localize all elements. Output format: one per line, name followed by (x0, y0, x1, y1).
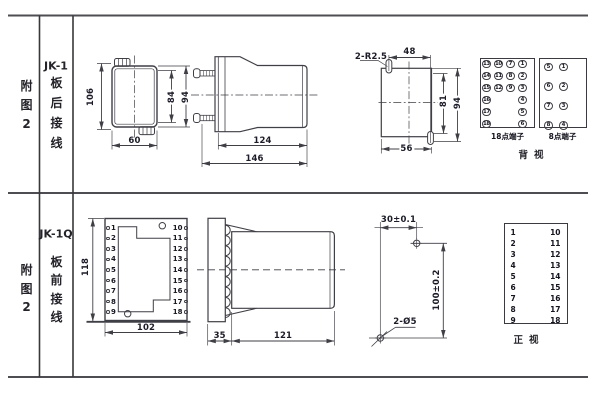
terminal-dot-icon (184, 310, 188, 314)
model-label-jk1: JK-1 (44, 60, 68, 73)
front-left-terminals: 123456789 (106, 223, 126, 319)
mounting-screw-bottom (194, 114, 201, 123)
terminal-row-label: 12 (173, 245, 183, 253)
terminal-circle-10: 10 (494, 60, 503, 69)
terminal-row-label: 3 (111, 245, 116, 253)
terminal-circle-17: 17 (482, 108, 491, 117)
front-table-left-column: 123456789 (511, 227, 516, 326)
terminal-dot-icon (106, 226, 110, 230)
terminal-row-label: 15 (173, 277, 183, 285)
terminal-row-4: 4 (106, 255, 116, 264)
back-view-caption: 背视 (518, 147, 549, 161)
terminal-dot-icon (106, 310, 110, 314)
terminal-number-12: 12 (550, 249, 560, 260)
terminal-row-label: 16 (173, 287, 183, 295)
terminal-number-4: 4 (511, 260, 516, 271)
terminal-circle-7: 7 (506, 60, 515, 69)
front-table-right-column: 101112131415161718 (550, 227, 560, 326)
dim-56: 56 (399, 144, 414, 154)
terminal-circle-4: 4 (559, 121, 568, 130)
terminal-circle-8: 8 (544, 121, 553, 130)
terminal-row-12: 12 (173, 244, 188, 253)
terminal-row-9: 9 (106, 308, 116, 317)
terminal-dot-icon (106, 300, 110, 304)
mounting-hole-top (159, 223, 165, 229)
terminal-circle-9: 9 (506, 84, 515, 93)
terminal-row-16: 16 (173, 287, 188, 296)
terminal-row-label: 1 (111, 224, 116, 232)
terminal-number-17: 17 (550, 304, 560, 315)
terminal-block-18-label: 18点端子 (478, 131, 537, 142)
dim-60: 60 (128, 136, 140, 146)
terminal-number-11: 11 (550, 238, 560, 249)
terminal-circle-7: 7 (544, 102, 553, 111)
dim-100: 100±0.2 (432, 269, 442, 310)
terminal-row-8: 8 (106, 297, 116, 306)
label-2-d5: 2-Ø5 (393, 317, 416, 327)
dim-94-rear: 94 (181, 89, 191, 104)
terminal-number-14: 14 (550, 271, 560, 282)
terminal-number-16: 16 (550, 293, 560, 304)
terminal-row-label: 11 (173, 234, 183, 242)
terminal-circle-11: 11 (494, 72, 503, 81)
terminal-dot-icon (106, 268, 110, 272)
wiring-label-row2: 板前接线 (50, 253, 64, 327)
terminal-circle-1: 1 (518, 60, 527, 69)
terminal-row-6: 6 (106, 276, 116, 285)
dim-48: 48 (403, 47, 415, 57)
terminal-circle-5: 5 (544, 63, 553, 72)
terminal-dot-icon (184, 300, 188, 304)
terminal-number-8: 8 (511, 304, 516, 315)
terminal-circle-18: 18 (482, 120, 491, 129)
terminal-row-label: 6 (111, 277, 116, 285)
front-side-view-drawing (197, 218, 345, 345)
terminal-number-18: 18 (550, 315, 560, 326)
terminal-row-1: 1 (106, 223, 116, 232)
terminal-row-5: 5 (106, 265, 116, 274)
dim-124: 124 (253, 136, 271, 146)
dim-118: 118 (81, 258, 91, 276)
terminal-circle-3: 3 (559, 102, 568, 111)
terminal-circle-16: 16 (482, 96, 491, 105)
dim-35: 35 (214, 331, 226, 341)
terminal-circle-15: 15 (482, 84, 491, 93)
dim-30: 30±0.1 (381, 215, 416, 225)
terminal-dot-icon (106, 289, 110, 293)
terminal-row-7: 7 (106, 287, 116, 296)
terminal-circle-3: 3 (518, 84, 527, 93)
terminal-row-11: 11 (173, 234, 188, 243)
terminal-block-8: 56781234 (539, 58, 587, 128)
terminal-row-label: 2 (111, 234, 116, 242)
terminal-row-label: 9 (111, 308, 116, 316)
dim-84: 84 (167, 89, 177, 104)
terminal-dot-icon (106, 247, 110, 251)
terminal-row-label: 18 (173, 308, 183, 316)
terminal-row-10: 10 (173, 223, 188, 232)
terminal-row-label: 13 (173, 255, 183, 263)
rear-side-view-drawing (191, 57, 318, 167)
front-view-caption: 正视 (513, 332, 544, 346)
label-2-r2-5: 2-R2.5 (355, 52, 387, 62)
model-label-jk1q: JK-1Q (39, 228, 72, 241)
terminal-circle-6: 6 (544, 82, 553, 91)
fig-label-row1: 附图2 (20, 77, 34, 134)
terminal-row-13: 13 (173, 255, 188, 264)
terminal-row-2: 2 (106, 234, 116, 243)
terminal-number-5: 5 (511, 271, 516, 282)
terminal-circle-2: 2 (559, 82, 568, 91)
terminal-number-3: 3 (511, 249, 516, 260)
terminal-dot-icon (184, 289, 188, 293)
terminal-circle-8: 8 (506, 72, 515, 81)
front-right-terminals: 101112131415161718 (170, 223, 188, 319)
terminal-block-8-label: 8点端子 (537, 131, 588, 142)
terminal-number-7: 7 (511, 293, 516, 304)
terminal-circle-5: 5 (518, 108, 527, 117)
terminal-dot-icon (106, 258, 110, 262)
dim-81: 81 (439, 93, 449, 108)
dim-106: 106 (86, 87, 96, 105)
terminal-circle-13: 13 (482, 60, 491, 69)
terminal-dot-icon (184, 226, 188, 230)
terminal-block-18: 131415161718101112789123456 (480, 58, 535, 128)
terminal-circle-2: 2 (518, 72, 527, 81)
terminal-row-label: 10 (173, 224, 183, 232)
terminal-row-label: 17 (173, 298, 183, 306)
terminal-dot-icon (106, 279, 110, 283)
dim-102: 102 (137, 323, 155, 333)
dim-121: 121 (274, 331, 292, 341)
terminal-circle-6: 6 (518, 120, 527, 129)
terminal-dot-icon (184, 237, 188, 241)
terminal-number-6: 6 (511, 282, 516, 293)
terminal-row-label: 5 (111, 266, 116, 274)
terminal-row-label: 14 (173, 266, 183, 274)
front-terminal-table: 123456789 101112131415161718 (504, 223, 569, 324)
terminal-number-2: 2 (511, 238, 516, 249)
terminal-circle-14: 14 (482, 72, 491, 81)
mounting-screw-top (194, 69, 201, 78)
terminal-row-15: 15 (173, 276, 188, 285)
relay-dimension-drawing: 附图2 JK-1 板后接线 附图2 JK-1Q 板前接线 106 60 84 9… (0, 0, 600, 400)
terminal-number-1: 1 (511, 227, 516, 238)
terminal-dot-icon (184, 279, 188, 283)
terminal-row-label: 7 (111, 287, 116, 295)
terminal-circle-1: 1 (559, 63, 568, 72)
terminal-number-15: 15 (550, 282, 560, 293)
wiring-label-row1: 板后接线 (50, 73, 64, 153)
terminal-row-18: 18 (173, 308, 188, 317)
fig-label-row2: 附图2 (20, 261, 34, 317)
terminal-row-17: 17 (173, 297, 188, 306)
terminal-row-3: 3 (106, 244, 116, 253)
terminal-row-label: 8 (111, 298, 116, 306)
terminal-row-label: 4 (111, 255, 116, 263)
terminal-circle-12: 12 (494, 84, 503, 93)
terminal-number-13: 13 (550, 260, 560, 271)
dim-94-cutout: 94 (453, 95, 463, 110)
terminal-dot-icon (184, 258, 188, 262)
terminal-row-14: 14 (173, 265, 188, 274)
dim-146: 146 (245, 154, 263, 164)
terminal-dot-icon (184, 268, 188, 272)
terminal-dot-icon (106, 237, 110, 241)
terminal-number-10: 10 (550, 227, 560, 238)
terminal-number-9: 9 (511, 315, 516, 326)
terminal-circle-4: 4 (518, 96, 527, 105)
terminal-dot-icon (184, 247, 188, 251)
